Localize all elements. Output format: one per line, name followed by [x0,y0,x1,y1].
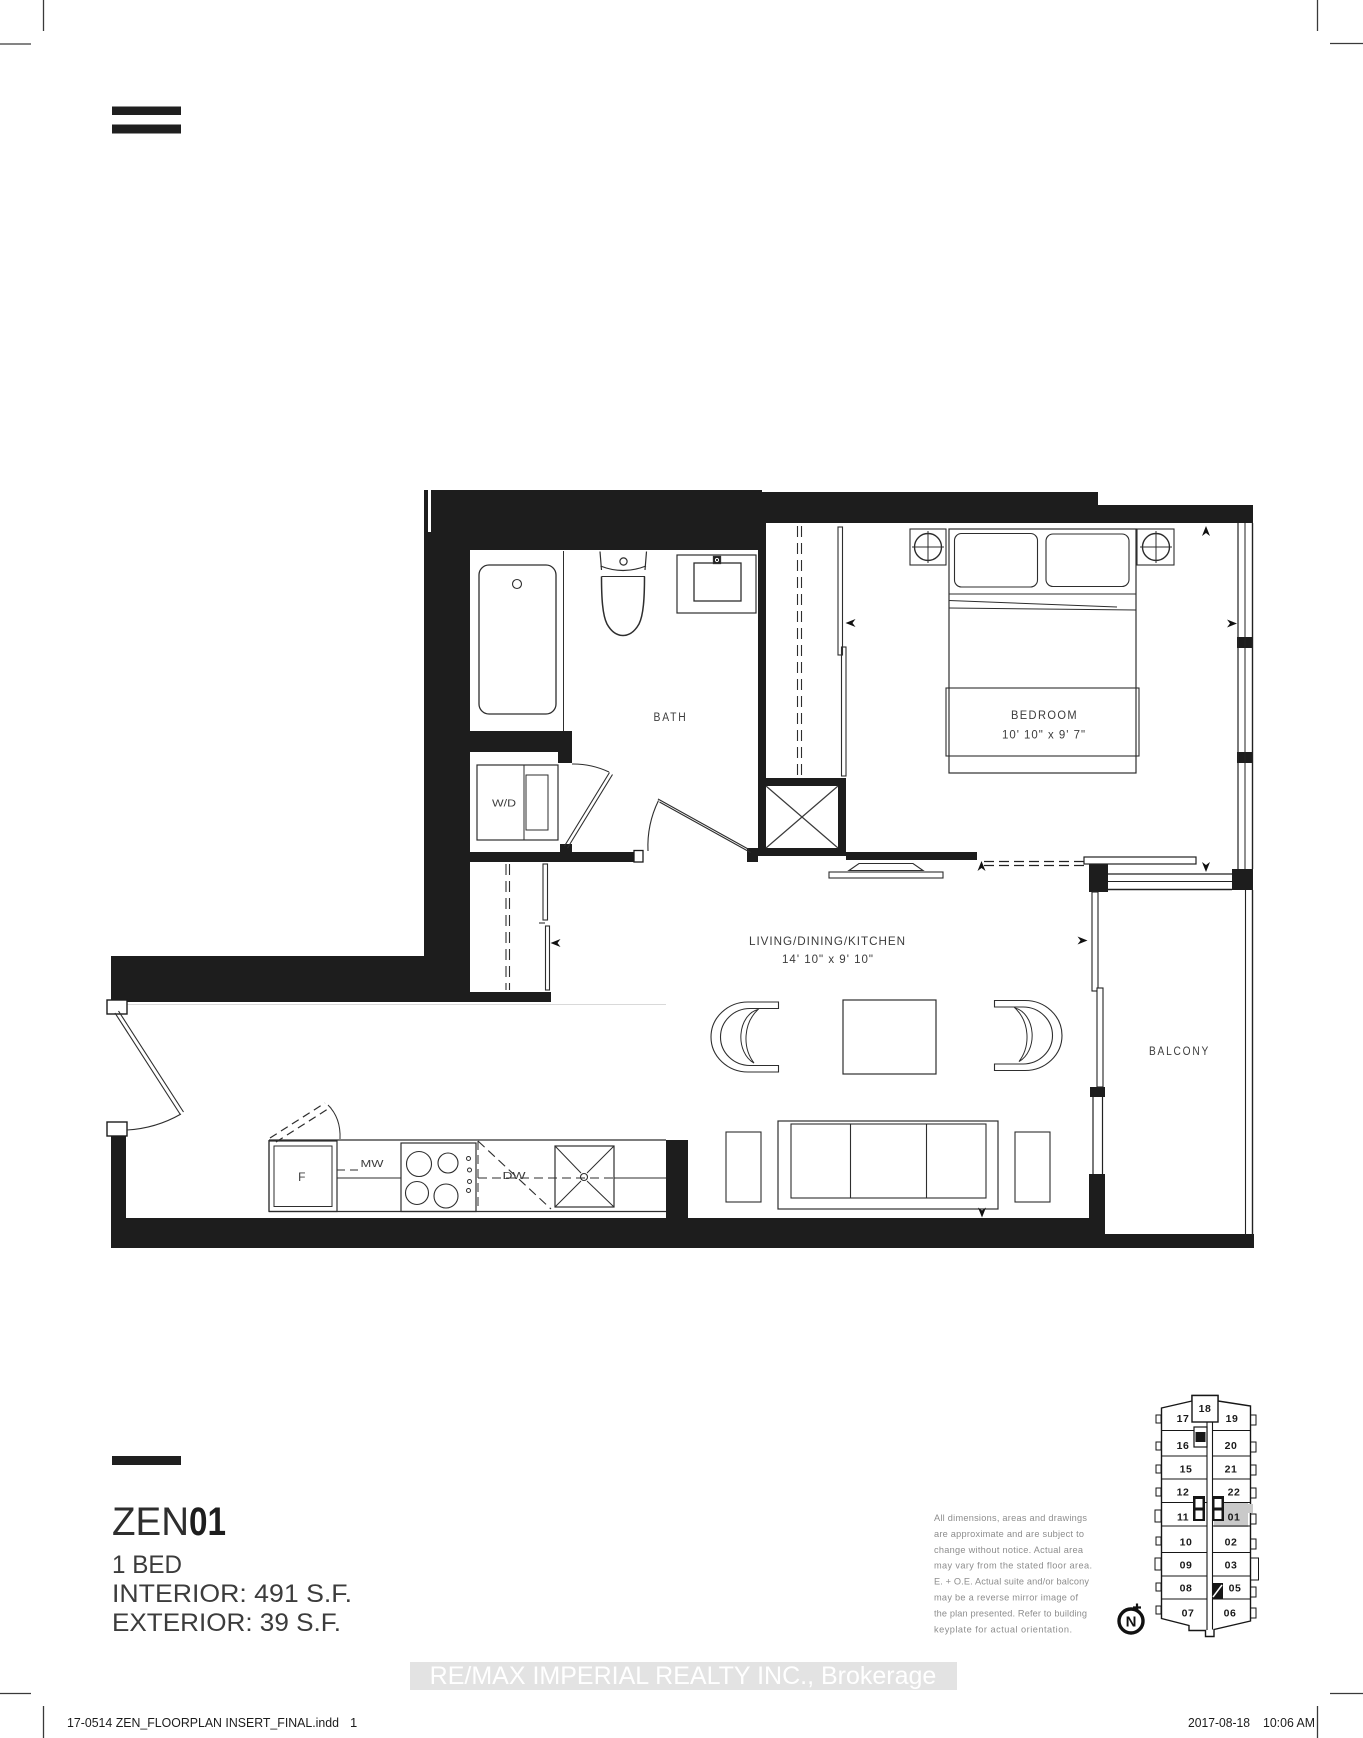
svg-text:12: 12 [1177,1487,1190,1499]
svg-text:10: 10 [1180,1537,1193,1549]
svg-text:are approximate and are subjec: are approximate and are subject to [934,1529,1084,1539]
svg-text:W/D: W/D [492,799,516,810]
svg-text:18: 18 [1199,1403,1212,1415]
svg-text:21: 21 [1225,1464,1238,1476]
svg-text:05: 05 [1229,1583,1242,1595]
svg-text:BEDROOM: BEDROOM [1011,708,1078,722]
svg-text:07: 07 [1182,1608,1195,1620]
svg-text:All dimensions, areas and draw: All dimensions, areas and drawings [934,1513,1087,1523]
svg-text:EXTERIOR: 39 S.F.: EXTERIOR: 39 S.F. [112,1609,341,1637]
svg-text:1 BED: 1 BED [112,1551,182,1579]
svg-text:17-0514 ZEN_FLOORPLAN INSERT_F: 17-0514 ZEN_FLOORPLAN INSERT_FINAL.indd [67,1715,339,1730]
svg-text:DW: DW [503,1170,526,1182]
svg-text:17: 17 [1177,1413,1190,1425]
svg-text:20: 20 [1225,1440,1238,1452]
svg-text:INTERIOR: 491 S.F.: INTERIOR: 491 S.F. [112,1580,352,1608]
svg-text:2017-08-18: 2017-08-18 [1188,1715,1250,1730]
svg-text:ZEN: ZEN [112,1500,189,1544]
svg-text:14' 10" x 9' 10": 14' 10" x 9' 10" [782,954,874,966]
svg-text:03: 03 [1225,1560,1238,1572]
svg-text:change without notice. Actual: change without notice. Actual area [934,1545,1084,1555]
svg-text:F: F [298,1170,306,1184]
svg-text:22: 22 [1228,1487,1241,1499]
svg-text:BALCONY: BALCONY [1149,1046,1210,1058]
svg-text:may vary from the stated floor: may vary from the stated floor area. [934,1561,1092,1571]
svg-text:the plan presented. Refer to b: the plan presented. Refer to building [934,1608,1087,1618]
svg-text:keyplate for actual orientatio: keyplate for actual orientation. [934,1624,1072,1634]
svg-text:RE/MAX IMPERIAL REALTY INC., B: RE/MAX IMPERIAL REALTY INC., Brokerage [430,1662,937,1690]
svg-text:LIVING/DINING/KITCHEN: LIVING/DINING/KITCHEN [749,934,906,948]
svg-text:11: 11 [1177,1512,1189,1524]
svg-text:10:06 AM: 10:06 AM [1263,1715,1315,1730]
svg-text:15: 15 [1180,1464,1193,1476]
svg-text:10' 10" x 9' 7": 10' 10" x 9' 7" [1002,730,1086,742]
svg-text:1: 1 [350,1715,357,1730]
svg-text:19: 19 [1226,1413,1239,1425]
svg-text:09: 09 [1180,1560,1193,1572]
svg-text:may be a reverse mirror image: may be a reverse mirror image of [934,1593,1078,1603]
svg-text:N: N [1126,1614,1137,1631]
svg-text:E. + O.E. Actual suite and/or: E. + O.E. Actual suite and/or balcony [934,1577,1089,1587]
svg-text:MW: MW [361,1158,384,1170]
svg-text:BATH: BATH [654,712,688,724]
svg-text:01: 01 [1228,1512,1241,1524]
svg-text:01: 01 [189,1500,226,1544]
svg-text:16: 16 [1177,1440,1190,1452]
svg-text:06: 06 [1224,1608,1237,1620]
svg-text:08: 08 [1180,1583,1193,1595]
svg-text:02: 02 [1225,1537,1238,1549]
